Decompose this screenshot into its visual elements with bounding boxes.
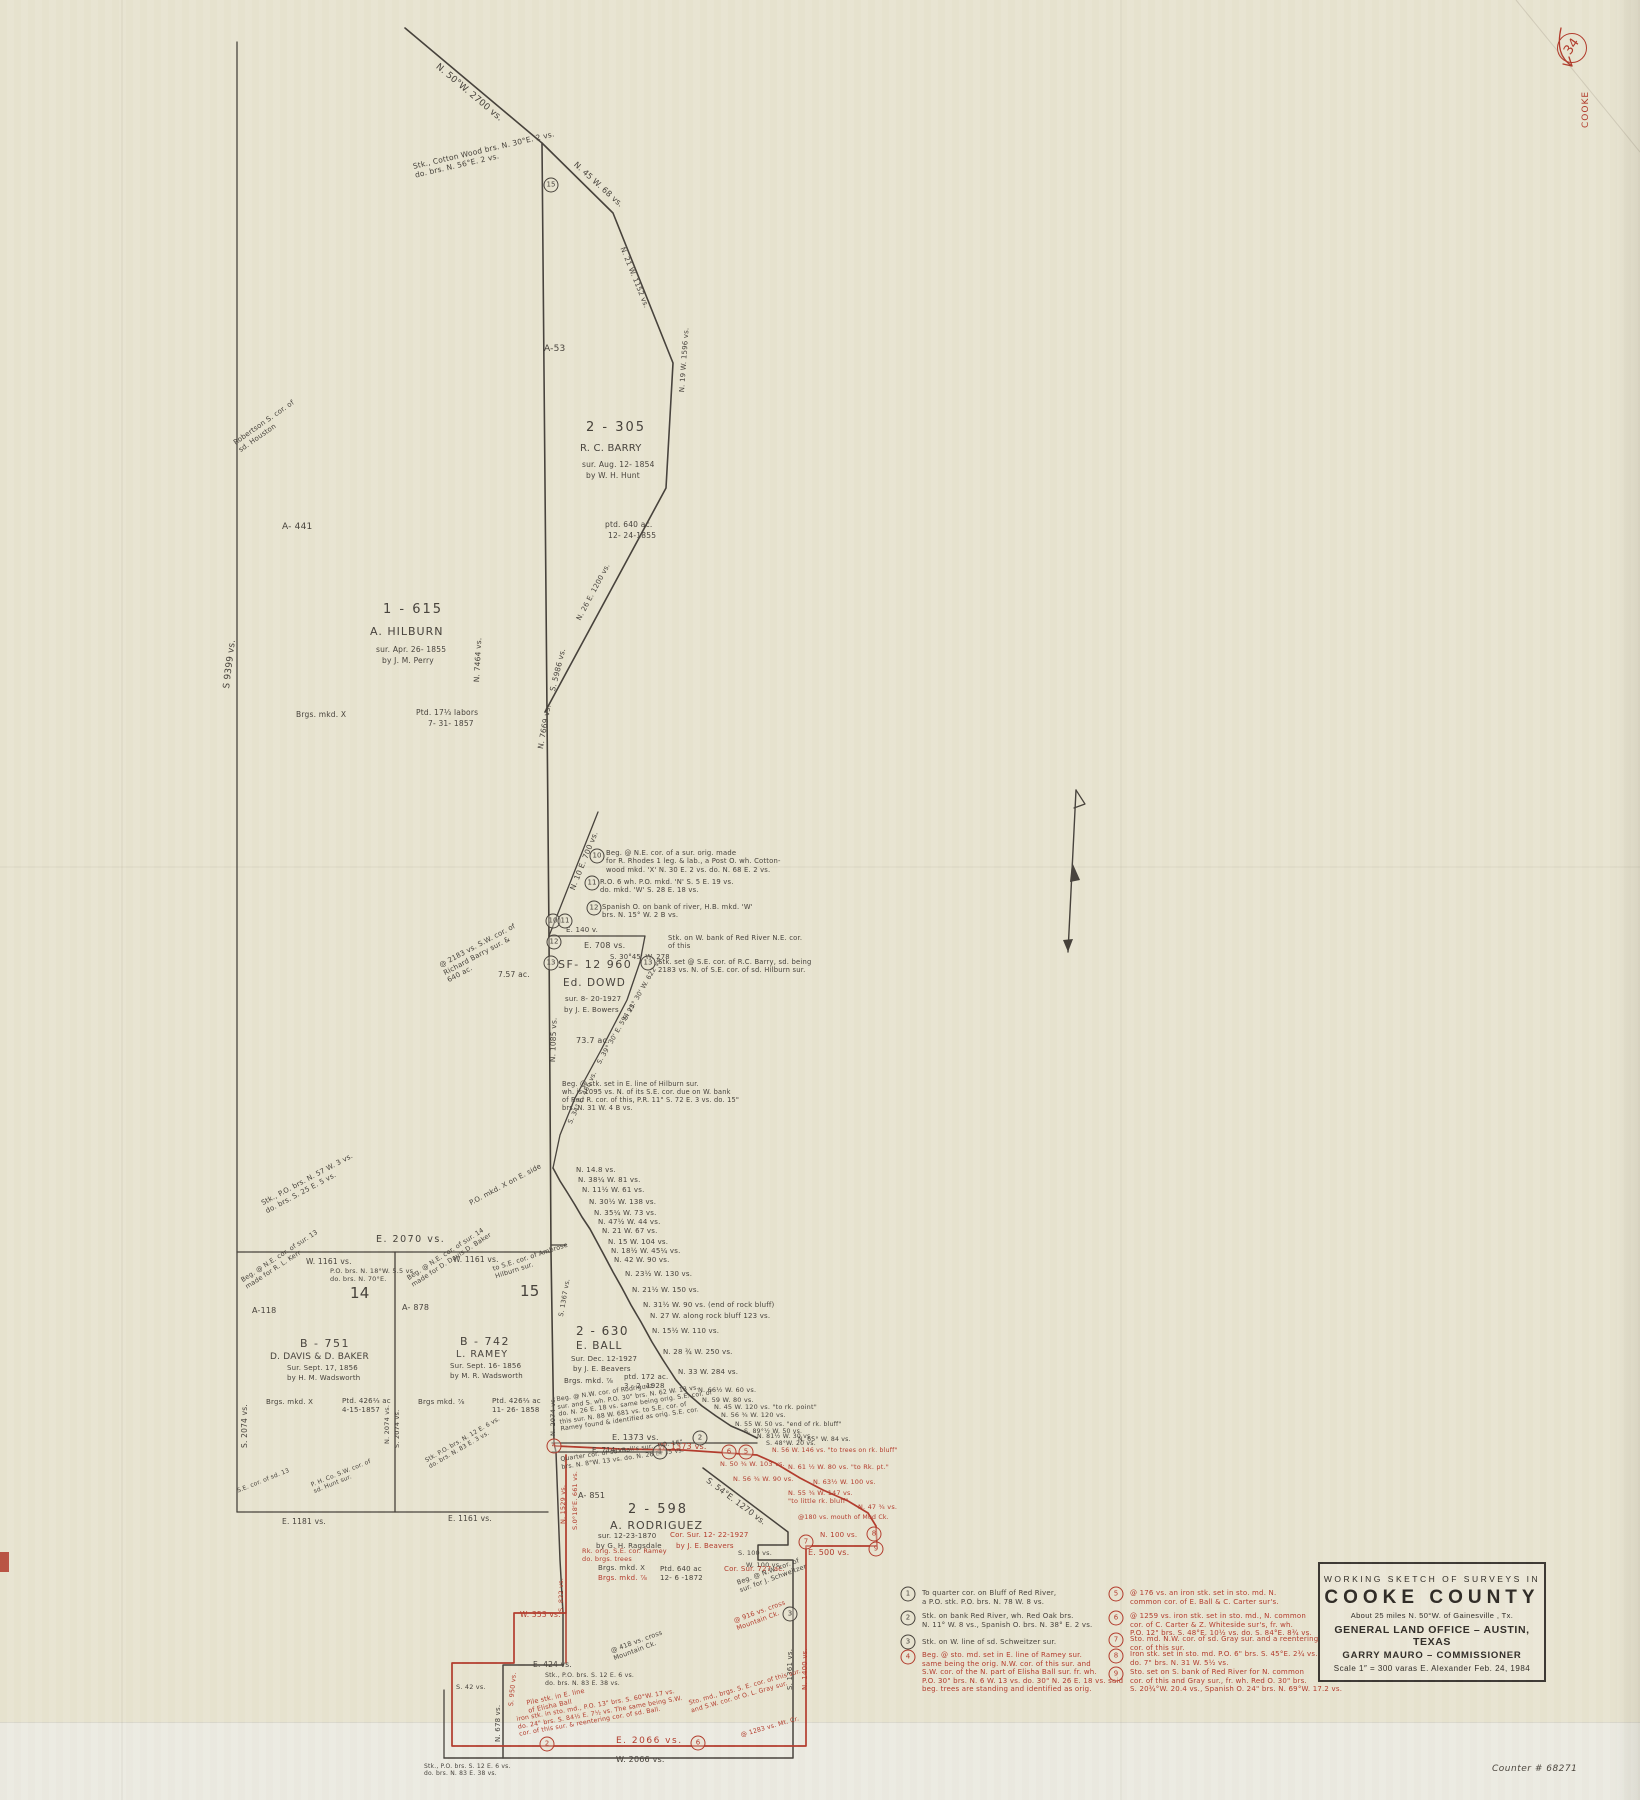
map-reference-circle: 4 [901,1650,916,1665]
map-label: N. 56 ¾ W. 90 vs. [733,1476,794,1484]
map-label: Sur. Dec. 12-1927 [571,1355,637,1364]
commissioner-line: GARRY MAURO – COMMISSIONER [1320,1650,1544,1661]
sheet-number: 34 [1557,33,1588,61]
map-label: R. C. BARRY [580,443,642,455]
map-label: E. 2066 vs. [616,1736,683,1747]
map-label: R.O. 6 wh. P.O. mkd. 'N' S. 5 E. 19 vs. … [600,878,734,895]
map-label: N. 21 W. 67 vs. [602,1227,658,1236]
map-label: Stk., P.O. brs. S. 12 E. 6 vs. do. brs. … [545,1672,634,1687]
map-label: N. 23½ W. 130 vs. [625,1270,692,1279]
map-label: D. DAVIS & D. BAKER [270,1352,369,1363]
map-label: N. 56 ¾ W. 120 vs. [721,1412,786,1420]
map-reference-circle: 11 [558,914,573,929]
map-label: N. 100 vs. [820,1531,857,1540]
map-label: Ptd. 640 ac 12- 6 -1872 [660,1565,703,1582]
map-label: A-118 [252,1306,276,1316]
map-label: 7.57 ac. [498,970,530,979]
map-label: Ed. DOWD [563,977,626,990]
map-label: N. 11½ W. 61 vs. [582,1186,645,1195]
map-label: N. 1529 vs. [560,1485,568,1524]
north-arrow-icon [1063,790,1085,952]
map-label: E. 424 vs. [533,1660,572,1669]
map-label: Brgs. mkd. X [598,1564,645,1573]
map-reference-circle: 3 [783,1607,798,1622]
map-reference-circle: 5 [1109,1587,1124,1602]
map-label: Brgs. mkd. X [296,710,346,719]
map-label: Brgs mkd. ⅞ [418,1398,465,1407]
map-label: by J. E. Beavers [676,1542,734,1551]
map-reference-circle: 15 [544,178,559,193]
map-label: W. 2066 vs. [616,1755,665,1765]
map-label: B - 751 [300,1337,350,1350]
map-reference-circle: 12 [587,901,602,916]
map-label: Stk. set @ S.E. cor. of R.C. Barry, sd. … [658,958,811,975]
map-label: N. 15 W. 104 vs. [608,1238,668,1247]
map-label: N. 27 W. along rock bluff 123 vs. [650,1312,770,1321]
map-label: Brgs. mkd. ⅞ [598,1574,647,1583]
map-label: 7- 31- 1857 [428,719,474,728]
map-label: S. 822 vs. [558,1578,566,1612]
map-label: N. 30½ W. 138 vs. [589,1198,656,1207]
map-reference-circle: 3 [901,1635,916,1650]
map-label: by J. E. Beavers [573,1365,631,1374]
map-label: W. 1161 vs. [306,1257,352,1266]
map-label: by M. R. Wadsworth [450,1372,523,1381]
scale-line: Scale 1″ = 300 varas E. Alexander Feb. 2… [1320,1664,1544,1673]
map-label: Cor. Sur. 12- 22-1927 [670,1531,749,1540]
map-label: Iron stk. set in sto. md. P.O. 6" brs. S… [1130,1650,1318,1667]
map-label: N. 63½ W. 100 vs. [813,1479,876,1487]
map-reference-circle: 6 [1109,1611,1124,1626]
map-label: by W. H. Hunt [586,471,640,480]
map-label: 2 - 305 [586,420,646,436]
map-label: Stk. on bank Red River, wh. Red Oak brs.… [922,1612,1092,1629]
map-label: A- 851 [578,1491,605,1501]
map-label: 12- 24-1855 [608,531,656,540]
map-label: Sur. Sept. 16- 1856 [450,1362,521,1371]
map-reference-circle: 1 [901,1587,916,1602]
map-label: L. RAMEY [456,1349,508,1361]
left-edge-mark [0,1552,9,1572]
map-reference-circle: 6 [691,1736,706,1751]
map-label: @180 vs. mouth of Mud Ck. [798,1514,889,1522]
map-label: sur. Apr. 26- 1855 [376,645,446,654]
map-label: SF- 12 960 [558,958,632,971]
map-reference-circle: 9 [1109,1667,1124,1682]
map-label: by J. E. Bowers [564,1006,619,1015]
map-label: 1 - 615 [383,602,443,618]
map-label: S. 42 vs. [456,1684,486,1692]
map-label: 14 [350,1284,370,1302]
map-label: P.O. brs. N. 18°W. 5.5 vs. do. brs. N. 7… [330,1268,416,1284]
county-edge-label: COOKE [1581,91,1591,128]
map-label: @ 176 vs. an iron stk. set in sto. md. N… [1130,1589,1279,1606]
map-reference-circle: 8 [1109,1649,1124,1664]
map-label: S. 100 vs. [738,1550,772,1558]
counter-number: Counter # 68271 [1492,1764,1577,1774]
map-label: N. 21½ W. 150 vs. [632,1286,699,1295]
map-label: Sur. Sept. 17, 1856 [287,1364,358,1373]
map-reference-circle: 11 [585,876,600,891]
map-label: E. 1181 vs. [282,1517,326,1526]
map-label: E. BALL [576,1340,622,1353]
map-label: A. HILBURN [370,625,443,638]
map-label: A- 441 [282,522,312,533]
map-label: Stk. on W. line of sd. Schweitzer sur. [922,1638,1056,1647]
map-reference-circle: 2 [901,1611,916,1626]
map-label: Rk. orig. S.E. cor. Ramey do. brgs. tree… [582,1548,667,1564]
map-label: Brgs. mkd. X [266,1398,313,1407]
map-label: Ptd. 17⅓ labors [416,708,478,717]
map-reference-circle: 9 [869,1542,884,1557]
map-label: N. 14.8 vs. [576,1166,616,1175]
map-label: E. 708 vs. [584,941,625,951]
map-label: N. 65° W. 84 vs. [798,1436,851,1444]
map-label: Beg. @ sto. md. set in E. line of Ramey … [922,1651,1123,1694]
map-reference-circle: 13 [641,956,656,971]
map-label: N. 61 ½ W. 80 vs. "to Rk. pt." [788,1464,889,1472]
map-reference-circle: 2 [540,1737,555,1752]
map-label: sur. Aug. 12- 1854 [582,460,655,469]
map-label: @ 1259 vs. iron stk. set in sto. md., N.… [1130,1612,1312,1638]
map-label: N. 35¼ W. 73 vs. [594,1209,657,1218]
map-label: S. 2074 vs. [240,1404,249,1448]
map-label: N. 55 ¾ W. 147 vs. "to little rk. bluff" [788,1490,853,1506]
map-label: Beg. @ N.E. cor. of a sur. orig. made fo… [606,849,781,874]
county-title: COOKE COUNTY [1320,1587,1544,1609]
map-label: N. 2074 vs. [384,1405,392,1444]
map-label: N. 47½ W. 44 vs. [598,1218,661,1227]
map-label: N. 678 vs. [494,1705,503,1742]
map-label: 2 - 630 [576,1324,629,1339]
map-label: N. 18½ W. 45¼ vs. [611,1247,681,1256]
map-reference-circle: 4 [547,1439,562,1454]
map-label: N. 47 ¾ vs. [858,1504,897,1512]
map-label: Brgs. mkd. ⅞ [564,1377,613,1386]
map-label: Stk. on W. bank of Red River N.E. cor. o… [668,934,802,951]
map-label: Beg. @ stk. set in E. line of Hilburn su… [562,1080,739,1112]
map-label: N. 15½ W. 110 vs. [652,1327,719,1336]
map-reference-circle: 6 [722,1445,737,1460]
map-reference-circle: 10 [590,849,605,864]
map-label: S.0°18'E. 661 vs. [572,1471,580,1530]
map-label: E. 140 v. [566,926,598,935]
map-label: 2 - 598 [628,1502,688,1518]
title-block: WORKING SKETCH OF SURVEYS IN COOKE COUNT… [1318,1562,1546,1682]
map-label: by J. M. Perry [382,656,434,665]
map-label: N. 42 W. 90 vs. [614,1256,670,1265]
map-reference-circle: 7 [1109,1633,1124,1648]
map-reference-circle: 2 [693,1431,708,1446]
map-label: A- 878 [402,1303,429,1313]
map-label: A-53 [544,344,565,355]
map-label: ptd. 640 ac. [605,520,652,529]
map-reference-circle: 13 [544,956,559,971]
map-label: N. 1400 vs. [801,1648,810,1690]
title-block-heading: WORKING SKETCH OF SURVEYS IN [1320,1574,1544,1584]
map-label: N. 28 ¾ W. 250 vs. [663,1348,733,1357]
map-label: N. 1085 vs. [548,1017,559,1062]
map-label: sur. 8- 20-1927 [565,995,621,1004]
agency-line: GENERAL LAND OFFICE – AUSTIN, TEXAS [1320,1624,1544,1648]
map-label: E. 2070 vs. [376,1234,445,1246]
map-reference-circle: 1 [653,1445,668,1460]
map-label: N. 50 ¾ W. 103 vs. [720,1461,785,1469]
map-label: B - 742 [460,1335,510,1348]
map-label: Stk., P.O. brs. S. 12 E. 6 vs. do. brs. … [424,1763,511,1778]
map-label: by H. M. Wadsworth [287,1374,360,1383]
map-label: 15 [520,1282,540,1300]
map-label: N. 38¼ W. 81 vs. [578,1176,641,1185]
map-reference-circle: 12 [547,935,562,950]
map-label: E. 500 vs. [808,1548,849,1558]
location-note: About 25 miles N. 50°W. of Gainesville ,… [1320,1611,1544,1620]
map-label: To quarter cor. on Bluff of Red River, a… [922,1589,1056,1606]
map-label: Sto. set on S. bank of Red River for N. … [1130,1668,1342,1694]
survey-sketch-sheet: N. 50°W. 2700 vs.Stk., Cotton Wood brs. … [0,0,1640,1800]
map-label: Ptd. 426⅔ ac 11- 26- 1858 [492,1397,541,1414]
survey-linework [0,0,1640,1800]
map-label: E. 1373 vs. [612,1433,659,1443]
map-label: W. 353 vs. [520,1610,561,1619]
map-label: S. 2074 vs. [394,1410,402,1448]
map-reference-circle: 7 [799,1535,814,1550]
map-reference-circle: 5 [739,1445,754,1460]
map-label: E. 1161 vs. [448,1514,492,1523]
map-label: sur. 12-23-1870 [598,1532,656,1541]
map-label: N. 31½ W. 90 vs. (end of rock bluff) [643,1301,774,1310]
map-label: Spanish O. on bank of river, H.B. mkd. '… [602,903,753,920]
sheet-number-badge: 34 [1557,33,1587,63]
map-reference-circle: 8 [867,1527,882,1542]
map-label: N. 56 W. 146 vs. "to trees on rk. bluff" [772,1447,898,1455]
